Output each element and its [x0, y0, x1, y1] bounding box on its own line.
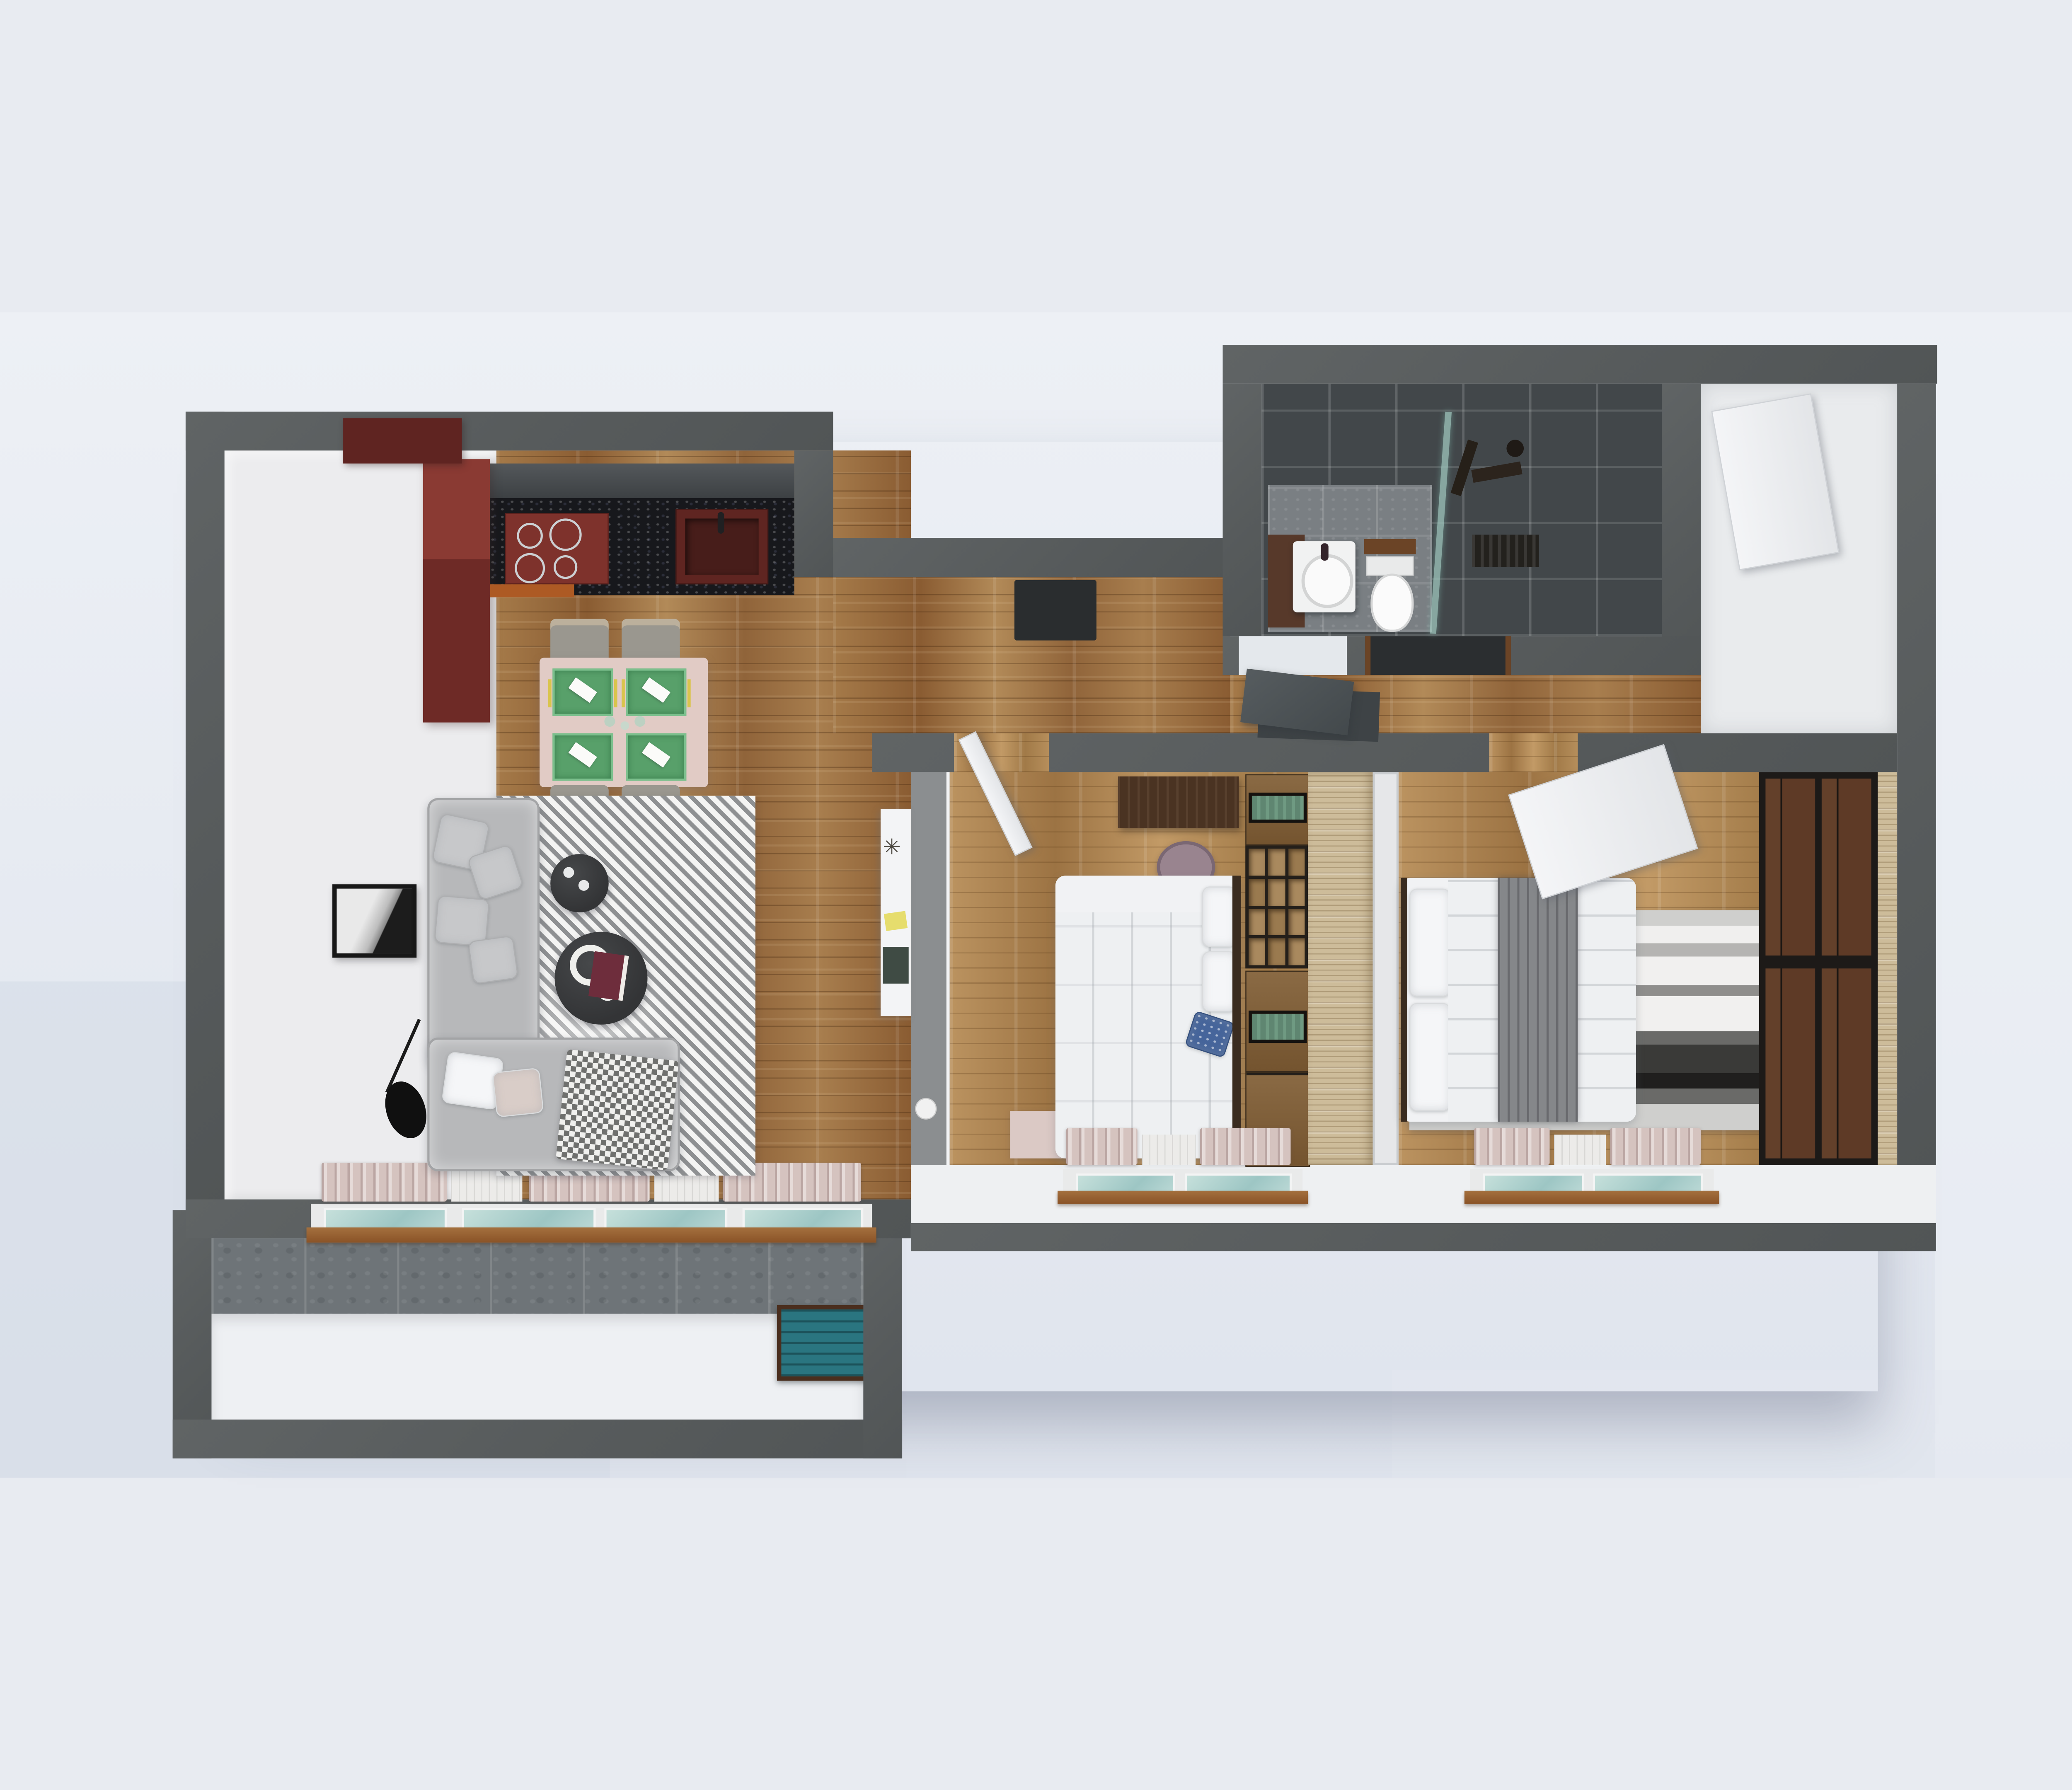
dining-chair	[622, 619, 680, 664]
wall-top-right-block	[1223, 345, 1937, 384]
sticky-notes	[884, 911, 908, 931]
cube-cell	[1288, 849, 1305, 875]
bathroom-sink	[1293, 541, 1356, 612]
bedroom1-window-sill	[1058, 1191, 1308, 1204]
cabinet-glass-door	[1249, 793, 1307, 823]
bedroom2-bed	[1401, 878, 1636, 1122]
bedroom1-curtain	[1066, 1128, 1138, 1165]
bedroom2-throw	[1498, 878, 1578, 1122]
cabinet-glass-door	[1249, 1011, 1307, 1043]
bedroom1-desk	[1118, 776, 1239, 828]
kitchen-hood-cabinet-column	[423, 459, 490, 722]
faucet	[718, 512, 724, 534]
render-viewport: ✳	[0, 0, 2072, 1790]
toilet-shelf	[1364, 539, 1416, 554]
wall-hallway-top	[833, 538, 1230, 577]
cutlery	[548, 679, 552, 707]
kitchen-red-shelf	[343, 418, 462, 463]
bedroom2-doorway-gap	[1489, 733, 1578, 772]
wine-glass	[579, 880, 589, 891]
bedroom2-wardrobe	[1759, 772, 1878, 1165]
exterior-ledge-gray	[911, 1223, 1936, 1251]
cutlery	[687, 679, 691, 707]
bedroom2-headboard	[1401, 878, 1407, 1122]
bedroom2-pillow	[1409, 1003, 1450, 1110]
shower-head	[1506, 440, 1524, 457]
placemat	[552, 668, 613, 716]
wall-top-living	[186, 411, 833, 450]
shower-drain	[1472, 535, 1539, 567]
cooktop	[505, 513, 609, 584]
placemat	[626, 668, 686, 716]
burner	[554, 555, 577, 579]
coffee-table-large	[555, 932, 648, 1025]
cube-cell	[1249, 849, 1265, 875]
living-window-sill	[307, 1227, 876, 1242]
sink-faucet	[1321, 543, 1329, 561]
toilet-tank	[1366, 556, 1414, 576]
burner	[515, 553, 545, 583]
napkin	[642, 742, 670, 767]
living-curtain	[322, 1163, 447, 1202]
cutlery	[614, 679, 617, 707]
cube-cell	[1268, 878, 1285, 905]
balcony-wall-right	[863, 1210, 902, 1458]
wall-bathroom-right	[1662, 384, 1701, 675]
bedroom1-headboard	[1232, 876, 1241, 1158]
bedroom1-curtain-sheer	[1142, 1134, 1196, 1165]
wall-art-frame	[332, 884, 416, 958]
napkin	[569, 742, 597, 767]
kitchen-upper-cabinets	[488, 463, 794, 500]
throw-blanket	[556, 1049, 679, 1170]
green-book	[883, 947, 909, 984]
bedroom1-wardrobe	[1308, 772, 1372, 1165]
sofa-cushion	[434, 895, 490, 947]
wine-glass	[563, 867, 574, 878]
coffee-table-small	[550, 854, 609, 912]
balcony-crate	[777, 1305, 870, 1381]
floor-plan-stage: ✳	[0, 312, 2072, 1478]
wall-left	[186, 411, 225, 1210]
book	[588, 951, 629, 1001]
cube-cell	[1288, 939, 1305, 965]
placemat	[626, 733, 686, 781]
cube-cell	[1249, 878, 1265, 905]
cube-cell	[1268, 849, 1285, 875]
cube-cell	[1288, 878, 1305, 905]
bedroom1-pillow	[1202, 951, 1237, 1011]
cutlery	[622, 679, 625, 707]
white-vase	[915, 1098, 937, 1120]
cube-cell	[1268, 909, 1285, 935]
bedroom1-cabinet-bottom	[1245, 970, 1310, 1072]
dining-table	[540, 658, 708, 787]
sofa-cushion	[468, 935, 519, 984]
decor-twigs: ✳	[883, 837, 901, 858]
bedroom1-cube-shelving	[1245, 845, 1308, 968]
bedroom1-bed	[1055, 876, 1241, 1158]
bedroom1-curtain	[1200, 1128, 1291, 1165]
console-table: ✳	[881, 809, 911, 1016]
dining-chair	[550, 619, 609, 664]
sink-bowl	[1302, 554, 1353, 608]
balcony-parapet-tiles	[211, 1238, 863, 1316]
bedroom2-wardrobe-side	[1878, 772, 1897, 1165]
kitchen-orange-accent	[490, 584, 574, 597]
wall-right	[1897, 384, 1936, 1165]
cube-cell	[1249, 909, 1265, 935]
napkin	[642, 677, 670, 702]
toilet-bowl	[1370, 573, 1414, 632]
balcony-wall-bottom	[173, 1420, 902, 1459]
bedroom1-cabinet-top	[1245, 774, 1310, 845]
bathroom-doorway-gap	[1365, 636, 1511, 675]
burner	[549, 518, 582, 551]
sofa-cushion-blush	[492, 1067, 544, 1118]
placemat	[552, 733, 613, 781]
bedroom2-curtain-sheer	[1554, 1134, 1606, 1165]
napkin	[569, 677, 597, 702]
table-glassware	[604, 716, 615, 727]
burner	[517, 523, 543, 549]
cube-cell	[1249, 939, 1265, 965]
cube-cell	[1288, 909, 1305, 935]
wardrobe-panel	[1765, 779, 1815, 955]
cube-cell	[1268, 939, 1285, 965]
wall-step	[794, 450, 833, 577]
bedroom2-pillow	[1409, 888, 1450, 996]
wardrobe-panel	[1822, 779, 1871, 955]
wardrobe-panel	[1765, 968, 1815, 1158]
bedroom2-window-sill	[1464, 1191, 1719, 1204]
entrance-doorway-gap	[1239, 636, 1347, 675]
wall-bathroom-left	[1223, 384, 1262, 636]
wall-bedroom-divider	[1373, 772, 1399, 1165]
ceiling-light-panel	[1014, 580, 1097, 641]
kitchen-sink	[675, 509, 768, 584]
bedroom1-pillow	[1202, 886, 1237, 947]
background-band	[1935, 312, 2072, 1478]
bedroom2-curtain	[1610, 1128, 1701, 1165]
bedroom2-curtain	[1474, 1128, 1549, 1165]
wardrobe-panel	[1822, 968, 1871, 1158]
